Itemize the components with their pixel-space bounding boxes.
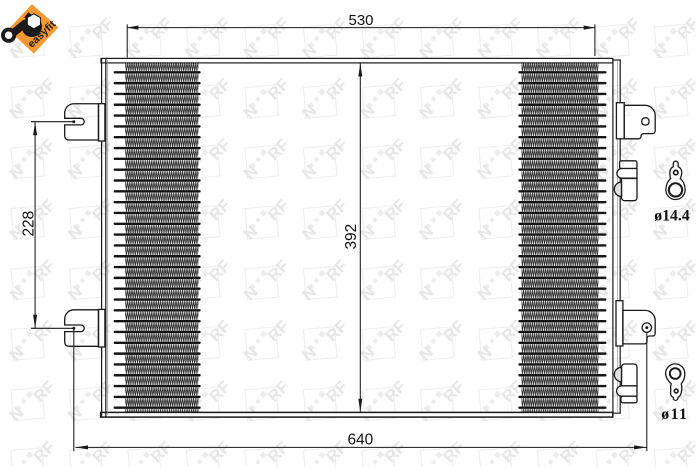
svg-text:ø14.4: ø14.4	[654, 207, 690, 224]
svg-text:228: 228	[20, 211, 37, 237]
svg-text:ø11: ø11	[661, 406, 688, 423]
svg-text:640: 640	[348, 431, 374, 448]
svg-text:530: 530	[348, 12, 373, 29]
svg-text:392: 392	[343, 224, 360, 250]
